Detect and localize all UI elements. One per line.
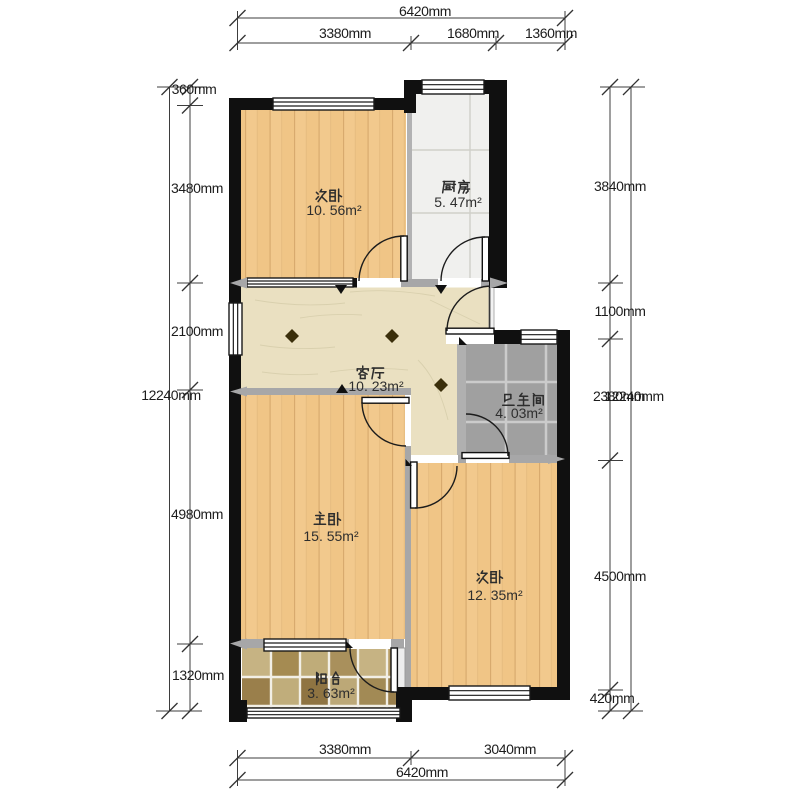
svg-text:1360mm: 1360mm (525, 25, 577, 41)
svg-text:4500mm: 4500mm (594, 568, 646, 584)
svg-text:420mm: 420mm (590, 690, 635, 706)
svg-text:6420mm: 6420mm (399, 3, 451, 19)
svg-text:12. 35m²: 12. 35m² (467, 587, 523, 603)
svg-text:3. 63m²: 3. 63m² (307, 685, 355, 701)
svg-text:3380mm: 3380mm (319, 741, 371, 757)
svg-text:12240mm: 12240mm (604, 388, 663, 404)
svg-text:4980mm: 4980mm (171, 506, 223, 522)
svg-text:10. 56m²: 10. 56m² (306, 202, 362, 218)
svg-text:1680mm: 1680mm (447, 25, 499, 41)
svg-text:4. 03m²: 4. 03m² (495, 405, 543, 421)
svg-text:6420mm: 6420mm (396, 764, 448, 780)
svg-text:2100mm: 2100mm (171, 323, 223, 339)
svg-text:15. 55m²: 15. 55m² (303, 528, 359, 544)
svg-text:360mm: 360mm (172, 81, 217, 97)
svg-text:3840mm: 3840mm (594, 178, 646, 194)
svg-text:3480mm: 3480mm (171, 180, 223, 196)
svg-text:12240mm: 12240mm (141, 387, 200, 403)
svg-text:1320mm: 1320mm (172, 667, 224, 683)
svg-text:1100mm: 1100mm (594, 303, 645, 319)
svg-text:10. 23m²: 10. 23m² (348, 378, 404, 394)
svg-text:5. 47m²: 5. 47m² (434, 194, 482, 210)
svg-text:3040mm: 3040mm (484, 741, 536, 757)
svg-text:3380mm: 3380mm (319, 25, 371, 41)
